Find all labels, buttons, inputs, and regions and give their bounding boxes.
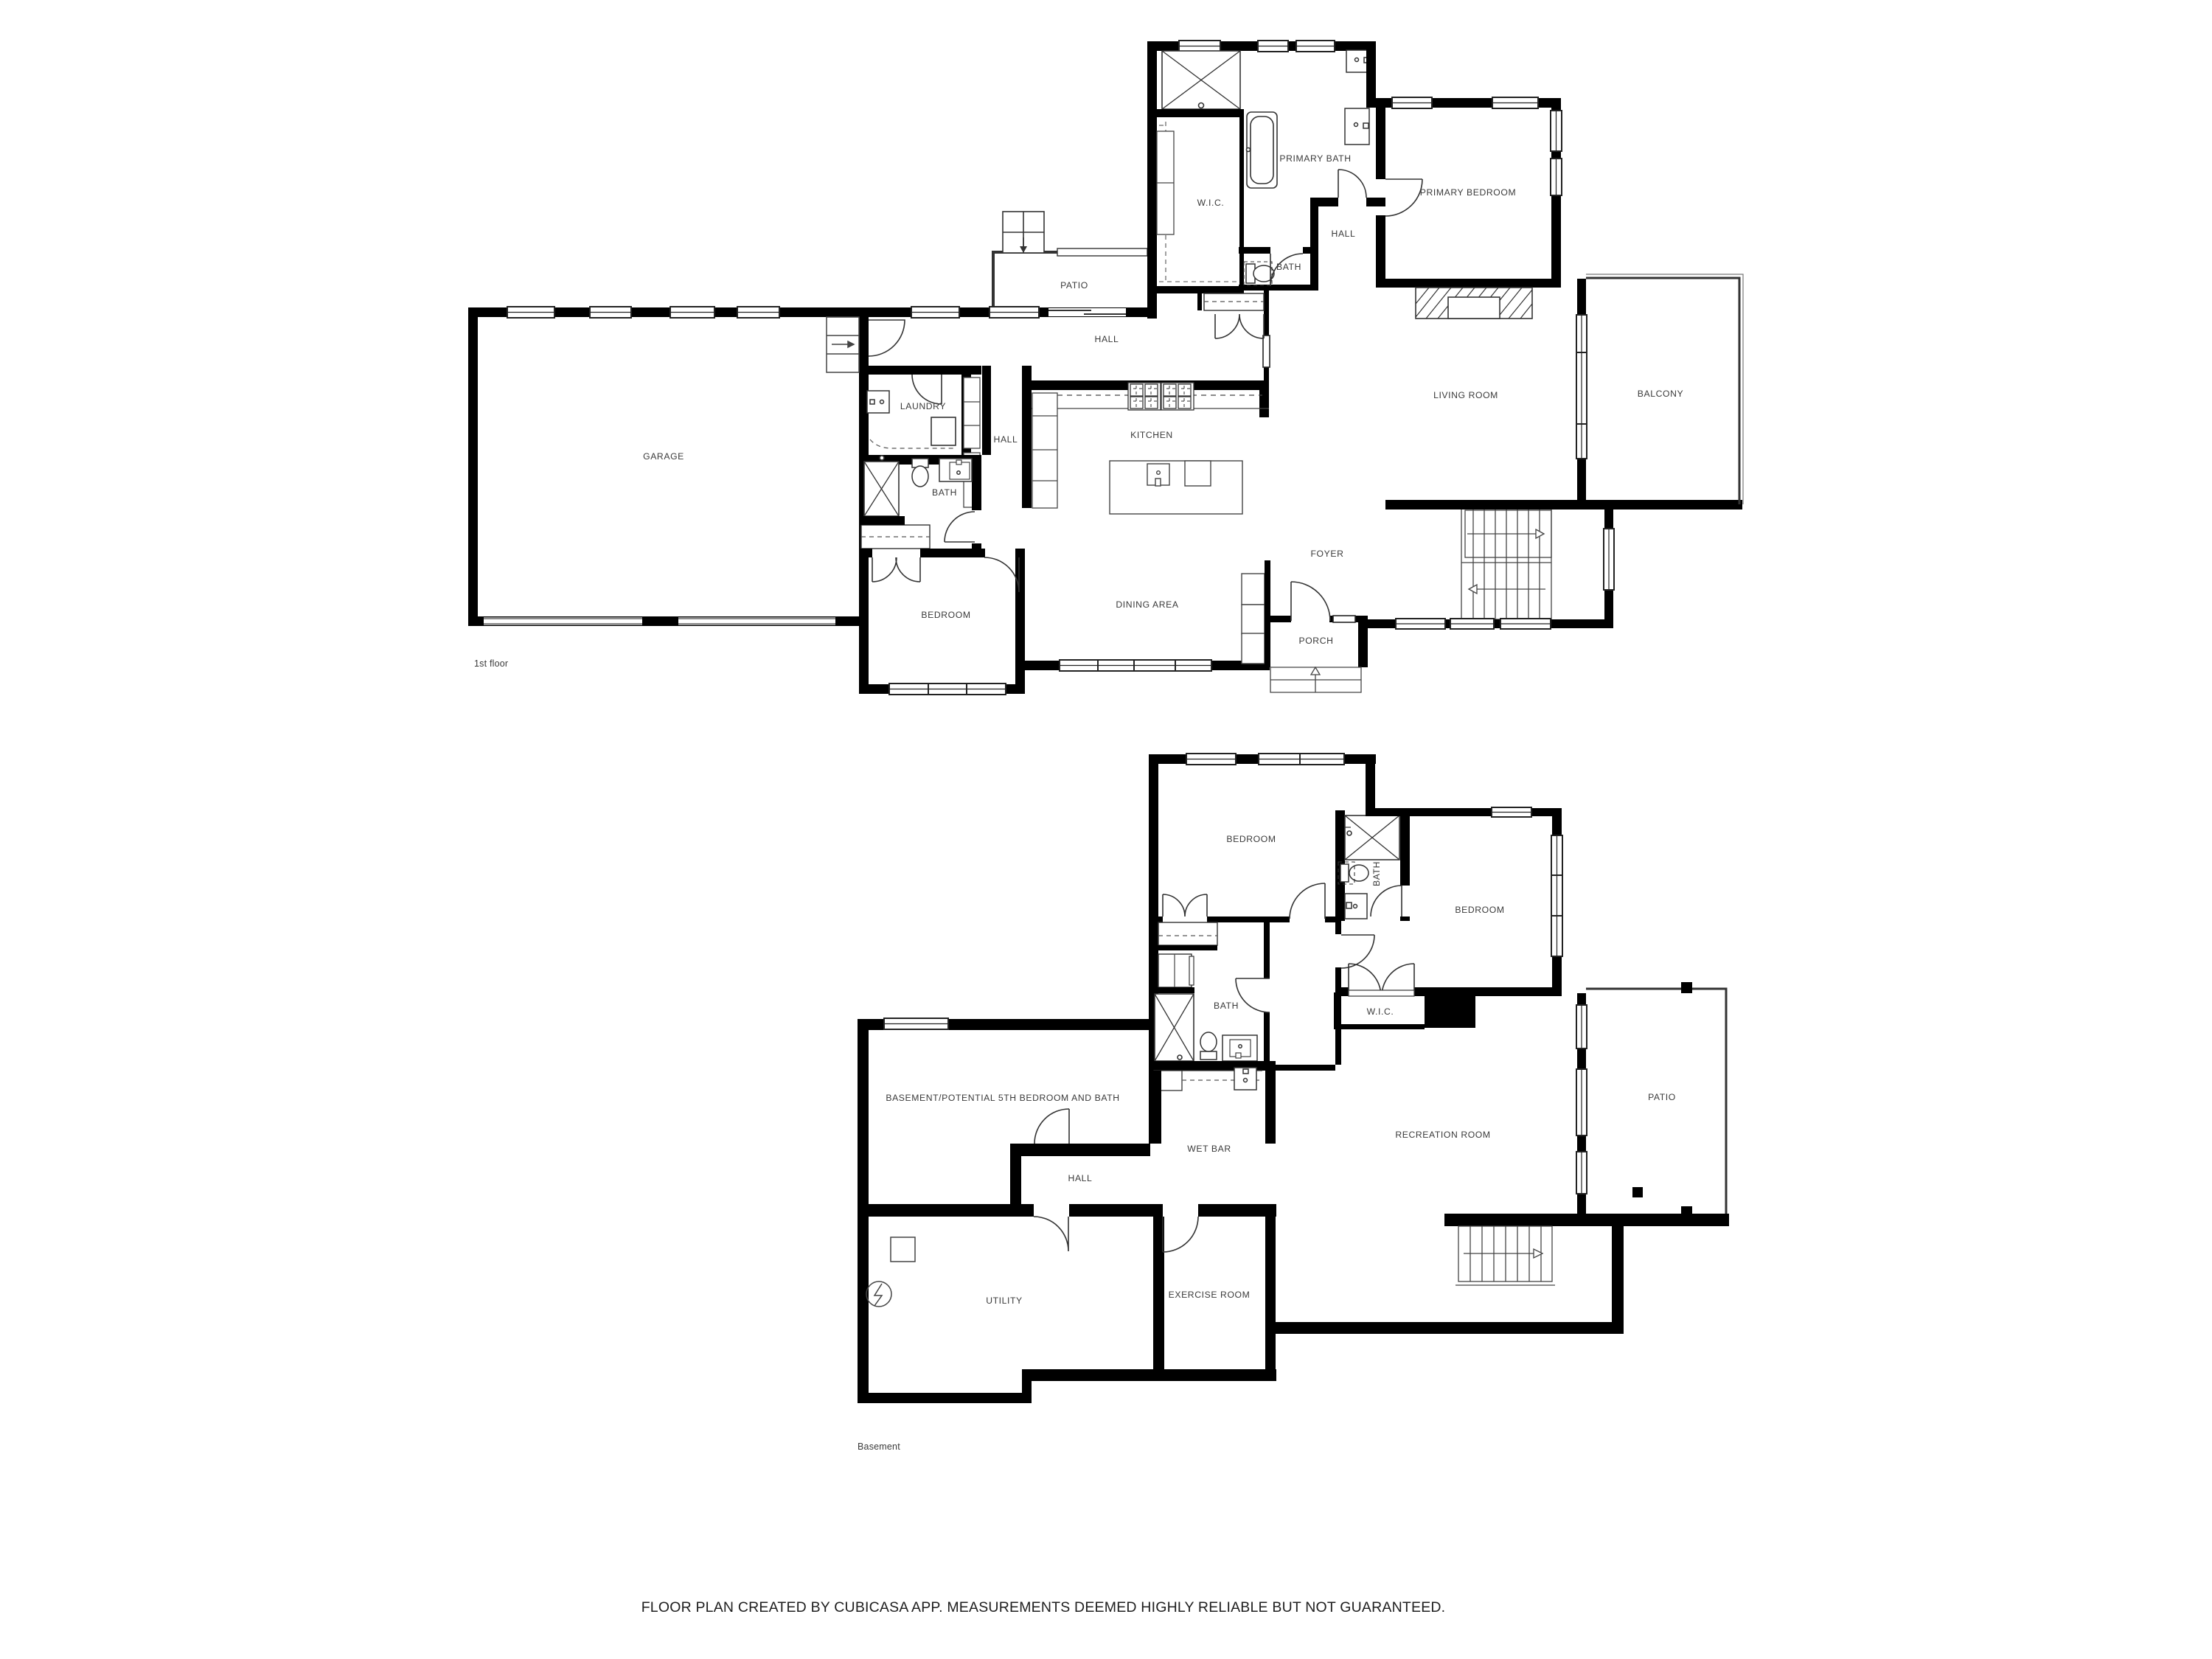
svg-text:LAUNDRY: LAUNDRY	[900, 401, 946, 411]
svg-text:BATH: BATH	[1276, 262, 1301, 272]
svg-text:UTILITY: UTILITY	[986, 1295, 1023, 1306]
svg-text:DINING AREA: DINING AREA	[1116, 599, 1178, 610]
svg-text:FOYER: FOYER	[1311, 549, 1344, 559]
svg-text:W.I.C.: W.I.C.	[1197, 198, 1225, 208]
svg-text:BATH: BATH	[932, 487, 957, 498]
svg-text:PRIMARY BATH: PRIMARY BATH	[1279, 153, 1351, 164]
svg-text:PORCH: PORCH	[1298, 636, 1333, 646]
svg-text:RECREATION ROOM: RECREATION ROOM	[1395, 1130, 1490, 1140]
svg-text:HALL: HALL	[1068, 1173, 1093, 1183]
svg-text:Basement: Basement	[858, 1441, 900, 1452]
svg-text:BEDROOM: BEDROOM	[1226, 834, 1276, 844]
svg-text:BASEMENT/POTENTIAL 5TH BEDROOM: BASEMENT/POTENTIAL 5TH BEDROOM AND BATH	[886, 1093, 1119, 1103]
svg-text:HALL: HALL	[1095, 334, 1119, 344]
svg-text:HALL: HALL	[1332, 229, 1356, 239]
svg-text:EXERCISE ROOM: EXERCISE ROOM	[1169, 1290, 1251, 1300]
svg-text:KITCHEN: KITCHEN	[1130, 430, 1173, 440]
svg-text:WET BAR: WET BAR	[1187, 1144, 1231, 1154]
svg-text:PATIO: PATIO	[1060, 280, 1088, 291]
svg-text:BALCONY: BALCONY	[1638, 389, 1683, 399]
svg-text:PATIO: PATIO	[1648, 1092, 1676, 1102]
svg-text:FLOOR PLAN CREATED BY CUBICASA: FLOOR PLAN CREATED BY CUBICASA APP. MEAS…	[641, 1599, 1446, 1615]
svg-text:BEDROOM: BEDROOM	[921, 610, 970, 620]
svg-text:BEDROOM: BEDROOM	[1455, 905, 1504, 915]
svg-text:W.I.C.: W.I.C.	[1367, 1006, 1394, 1017]
svg-text:GARAGE: GARAGE	[643, 451, 684, 462]
svg-text:PRIMARY BEDROOM: PRIMARY BEDROOM	[1420, 187, 1516, 198]
svg-text:LIVING ROOM: LIVING ROOM	[1433, 390, 1498, 400]
svg-text:HALL: HALL	[994, 434, 1018, 445]
svg-text:1st floor: 1st floor	[474, 658, 508, 669]
svg-text:BATH: BATH	[1371, 861, 1382, 886]
svg-text:BATH: BATH	[1214, 1001, 1239, 1011]
